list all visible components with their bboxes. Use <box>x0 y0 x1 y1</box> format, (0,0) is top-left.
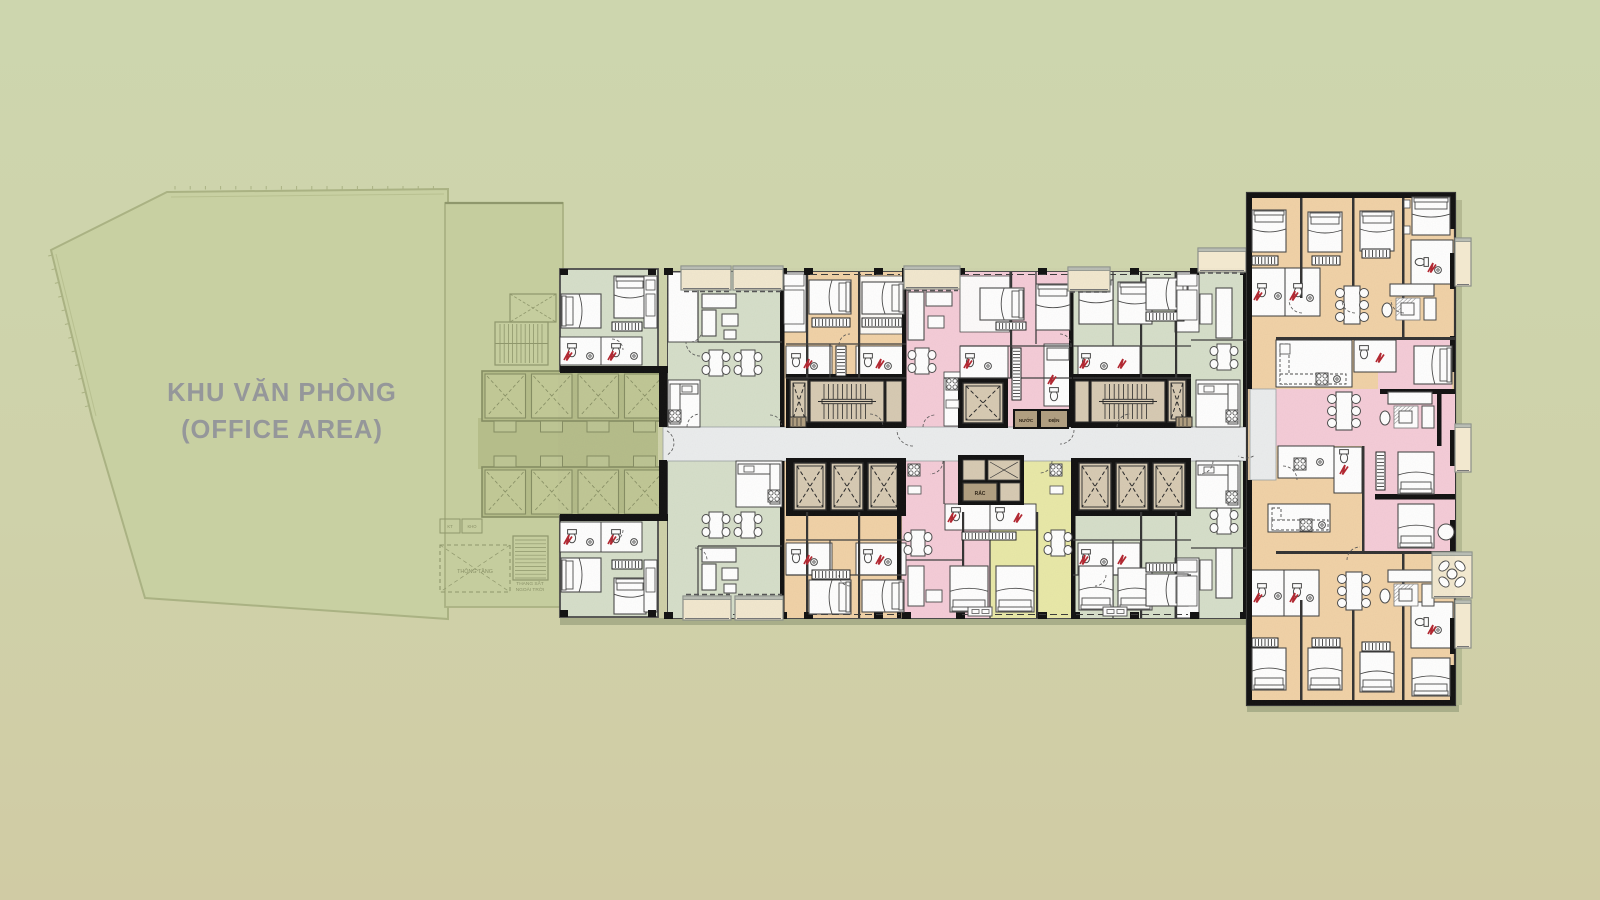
svg-text:(OFFICE AREA): (OFFICE AREA) <box>181 416 383 444</box>
svg-text:KHO: KHO <box>467 524 477 529</box>
svg-text:KT: KT <box>447 524 453 529</box>
svg-text:NGOÀI TRỜI: NGOÀI TRỜI <box>516 586 545 593</box>
svg-text:THÔNG TẦNG: THÔNG TẦNG <box>457 568 493 575</box>
svg-text:KHU VĂN PHÒNG: KHU VĂN PHÒNG <box>167 377 397 407</box>
